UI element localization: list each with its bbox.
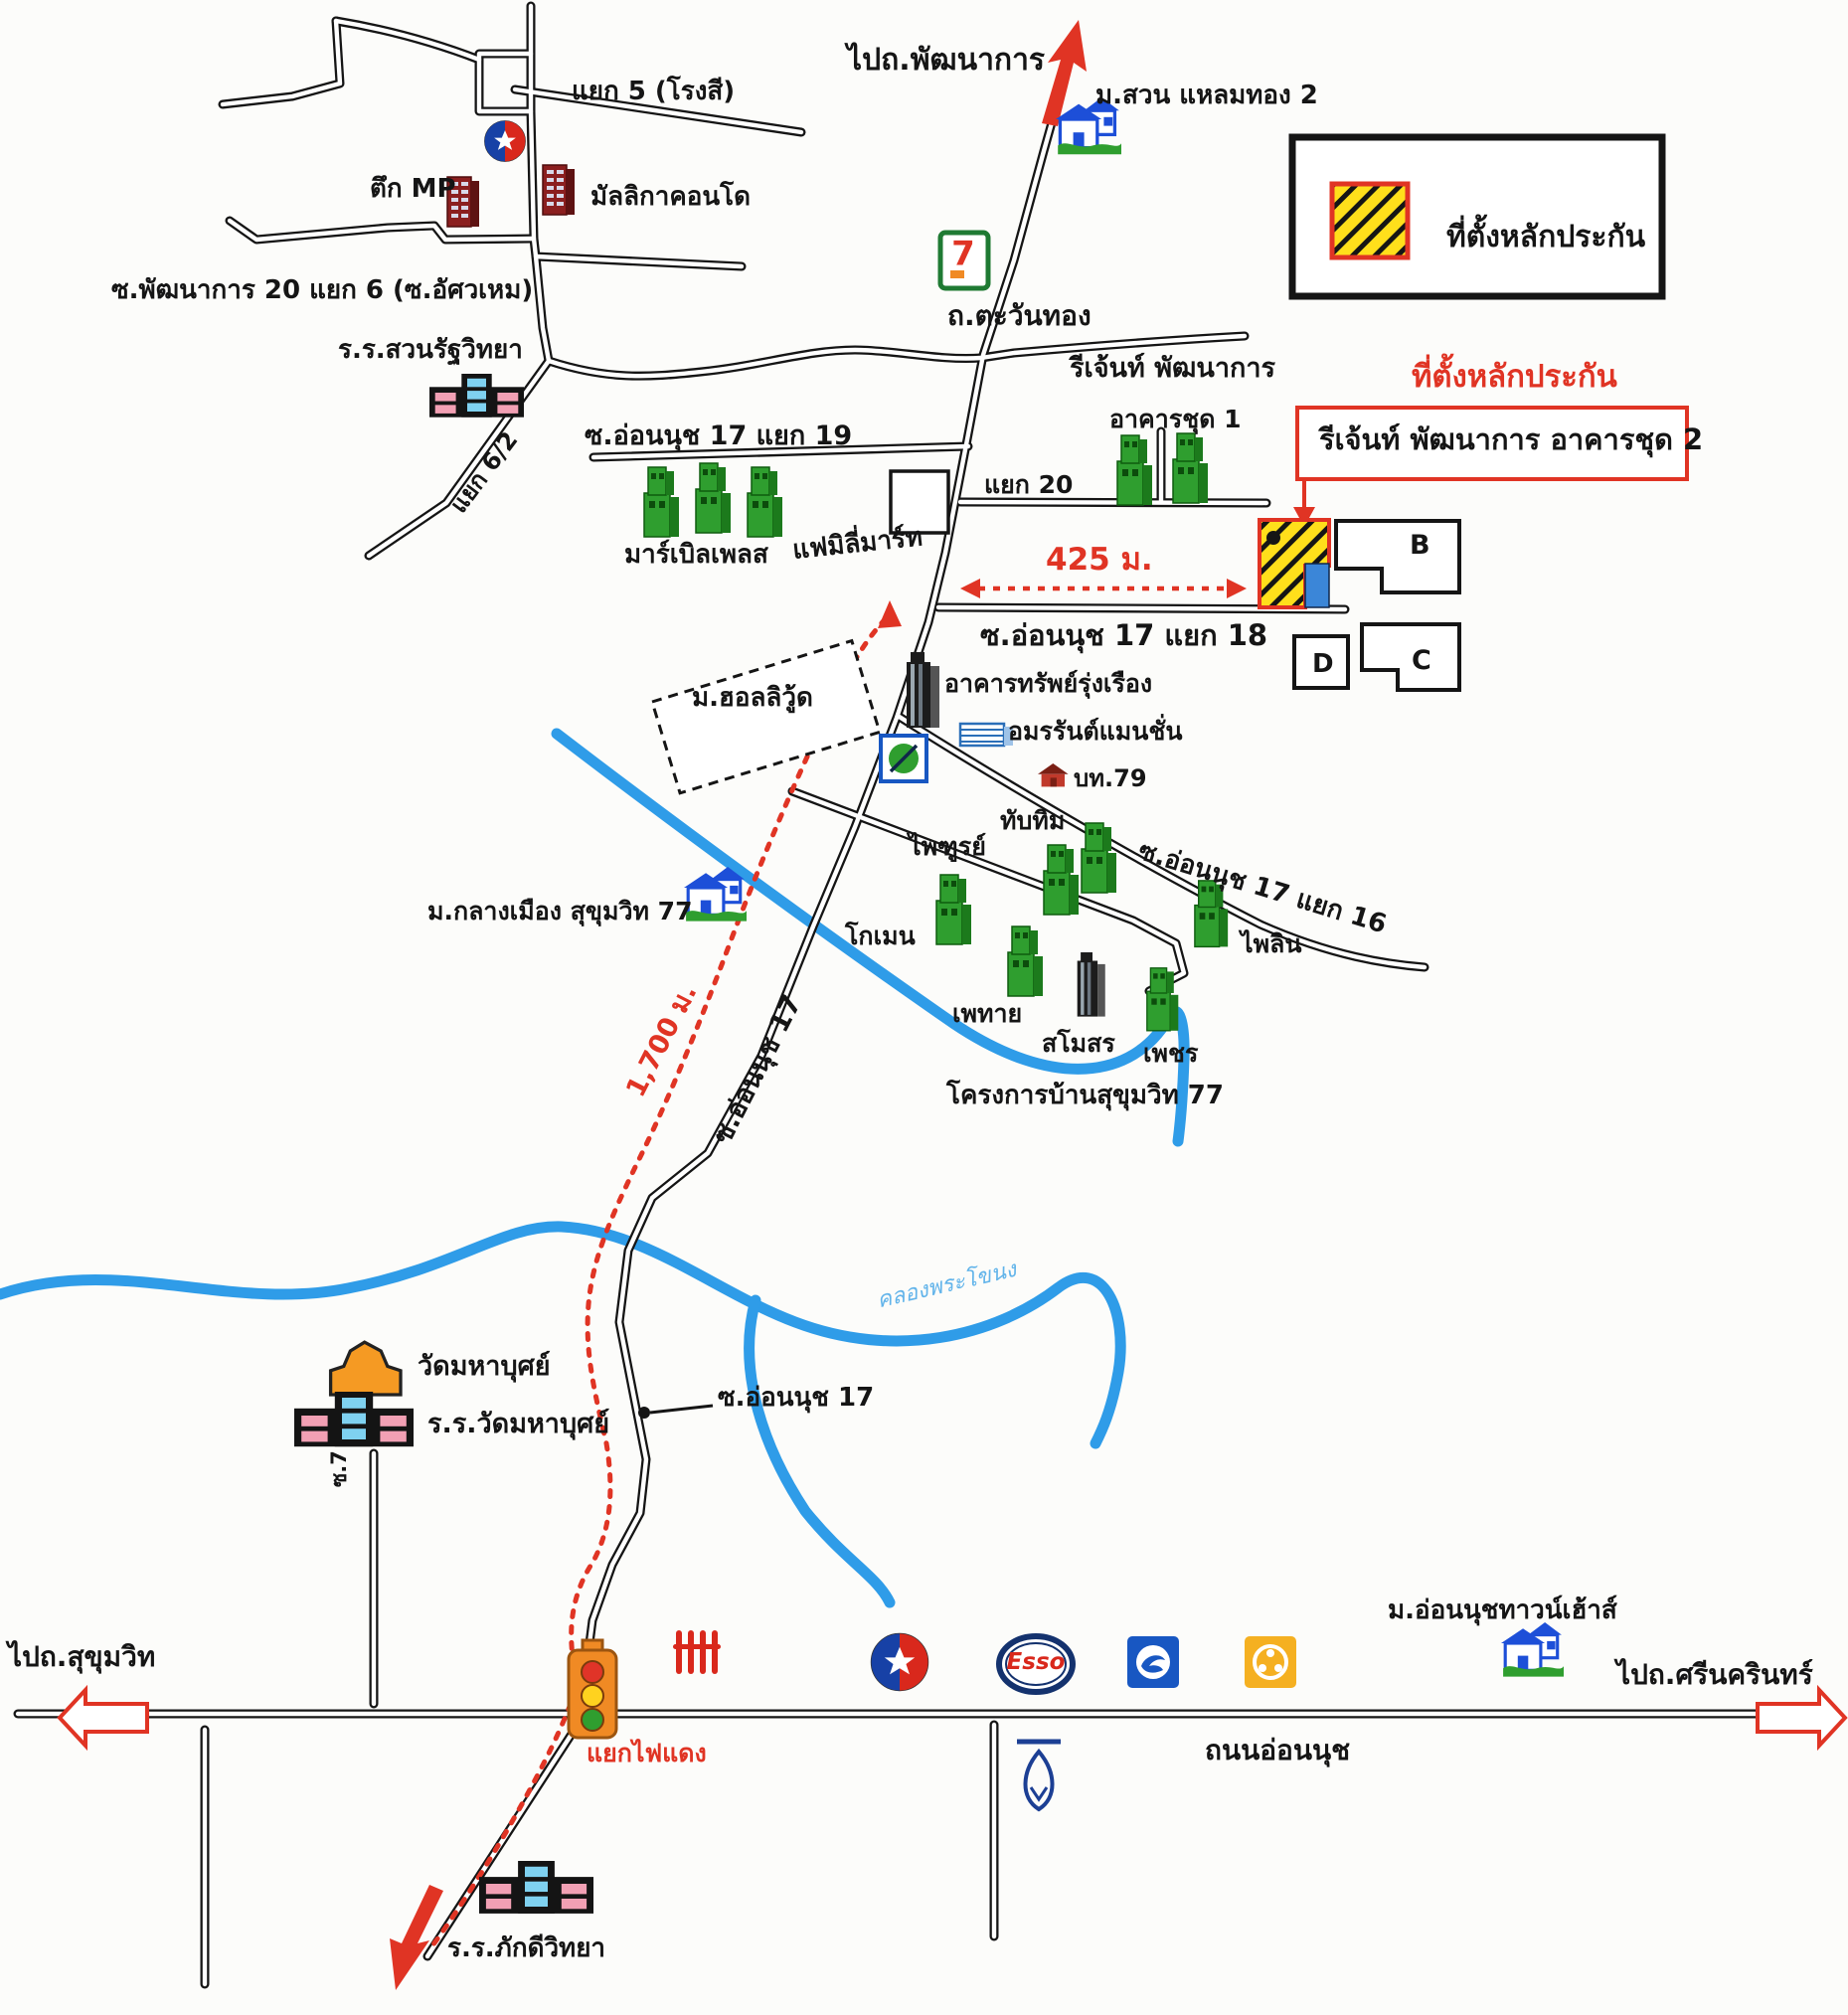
label-phaithun: ไพฑูรย์ [909, 833, 986, 861]
rivers [0, 734, 1184, 1602]
label-to-srinakarin: ไปถ.ศรีนครินทร์ [1616, 1660, 1813, 1691]
label-wat-mahabut: วัดมหาบุศย์ [418, 1352, 551, 1382]
label-regent-chut2: รีเจ้นท์ พัฒนาการ อาคารชุด 2 [1319, 424, 1703, 456]
railway-crossing-icon [673, 1630, 721, 1674]
label-yaek19: ซ.อ่อนนุช 17 แยก 19 [585, 421, 852, 451]
label-phakdi-school: ร.ร.ภักดีวิทยา [447, 1934, 605, 1963]
label-tawanthong: ถ.ตะวันทอง [947, 301, 1092, 332]
arrow-to-sukhumvit [60, 1690, 147, 1746]
label-baan77: โครงการบ้านสุขุมวิท 77 [946, 1082, 1224, 1110]
label-to-phatthanakan: ไปถ.พัฒนาการ [847, 44, 1045, 77]
label-regent: รีเจ้นท์ พัฒนาการ [1070, 354, 1275, 384]
label-phailin: ไพลิน [1241, 930, 1301, 958]
label-laemthong: ม.สวน แหลมทอง 2 [1095, 82, 1318, 110]
bangkok-bank-icon [1017, 1742, 1061, 1809]
label-amonrat: อมรรันต์แมนชั่น [1008, 718, 1182, 746]
label-sap-rungrueang: อาคารทรัพย์รุ่งเรือง [944, 670, 1152, 698]
legend-label: ที่ตั้งหลักประกัน [1446, 221, 1645, 253]
building-C [1362, 624, 1459, 690]
label-chut1: อาคารชุด 1 [1109, 406, 1242, 433]
pointer-line [650, 1406, 713, 1413]
office-tower-sap-icon [907, 652, 939, 728]
label-marble-place: มาร์เบิลเพลส [624, 541, 768, 570]
label-samoson: สโมสร [1042, 1030, 1115, 1058]
pointer-dot [638, 1407, 650, 1419]
label-to-sukhumvit: ไปถ.สุขุมวิท [8, 1642, 155, 1673]
label-yaek20: แยก 20 [984, 471, 1073, 499]
map-canvas: แยก 5 (โรงสี) ตึก MP มัลลิกาคอนโด ซ.พัฒน… [0, 0, 1848, 2015]
label-building-d: D [1312, 650, 1334, 679]
label-thapthim: ทับทิม [1000, 807, 1065, 835]
caltex-icon-south [872, 1634, 928, 1691]
green-tower-marble-1 [644, 467, 679, 537]
mansion-amonrat-icon [960, 724, 1013, 746]
green-tower-phet [1147, 968, 1179, 1031]
road-cluster-loop-inner [792, 791, 1184, 991]
label-yaek5: แยก 5 (โรงสี) [572, 78, 735, 106]
road-nw-loop [479, 54, 531, 111]
legend-box [1292, 137, 1662, 296]
collateral-dot [1266, 531, 1280, 545]
school-watmahabut-icon [294, 1392, 414, 1446]
road-yaek20-inner [960, 502, 1266, 503]
label-mallika: มัลลิกาคอนโด [590, 183, 751, 212]
label-hollywood: ม.ฮอลลิวู้ด [692, 684, 813, 713]
green-tower-thapthim-1 [1044, 845, 1079, 915]
green-tower-marble-3 [748, 467, 782, 537]
hollywood-block [652, 641, 880, 793]
label-komen: โกเมน [845, 923, 916, 950]
green-tower-phethai [1008, 926, 1043, 996]
label-wat-mahabut-school: ร.ร.วัดมหาบุศย์ [427, 1410, 609, 1439]
label-425m: 425 ม. [1046, 543, 1153, 577]
green-tower-chut1-2 [1173, 433, 1208, 503]
caltex-icon [485, 121, 526, 162]
condo-mallika-icon [543, 165, 575, 215]
house-klangmueang-icon [684, 867, 747, 922]
road-nw-2 [223, 21, 340, 104]
label-yaek18: ซ.อ่อนนุช 17 แยก 18 [980, 620, 1267, 652]
label-onnut17-pointer: ซ.อ่อนนุช 17 [718, 1384, 874, 1413]
label-suanrat-school: ร.ร.สวนรัฐวิทยา [338, 336, 523, 365]
label-townhouse: ม.อ่อนนุชทาวน์เฮ้าส์ [1388, 1596, 1617, 1625]
label-soi7: ซ.7 [328, 1450, 351, 1487]
distance-425-arrow-left [960, 579, 980, 598]
label-phet: เพชร [1143, 1040, 1198, 1068]
small-house-bt79-icon [1038, 763, 1069, 786]
arrow-to-srinakarin [1758, 1690, 1845, 1746]
label-phethai: เพทาย [952, 1000, 1022, 1028]
label-building-c: C [1412, 646, 1431, 676]
office-tower-samoson-icon [1078, 952, 1105, 1017]
label-tuek-mp: ตึก MP [370, 175, 456, 204]
traffic-light-icon [569, 1640, 616, 1738]
label-building-b: B [1410, 531, 1430, 561]
school-suanrat-icon [429, 374, 524, 418]
school-phakdi-icon [479, 1861, 593, 1914]
label-onnut-road: ถนนอ่อนนุช [1205, 1736, 1350, 1766]
house-townhouse-icon [1501, 1622, 1564, 1677]
esso-logo-text: Esso [1007, 1650, 1066, 1675]
green-circle-logo-icon [881, 736, 926, 781]
label-bt79: บท.79 [1074, 765, 1147, 791]
green-tower-marble-2 [696, 463, 731, 533]
seven-eleven-digit: 7 [951, 236, 975, 272]
label-collateral-red: ที่ตั้งหลักประกัน [1412, 360, 1617, 394]
building-B [1336, 521, 1459, 592]
krungsri-bank-icon [1245, 1636, 1296, 1688]
green-tower-thapthim-2 [1082, 823, 1116, 893]
ktb-bank-icon [1127, 1636, 1179, 1688]
label-phatthanakan20: ซ.พัฒนาการ 20 แยก 6 (ซ.อัศวเหม) [111, 276, 533, 305]
temple-icon [331, 1342, 401, 1395]
route-arrowhead-north [878, 600, 902, 628]
river-branch [750, 1300, 890, 1602]
label-red-light-junction: แยกไฟแดง [587, 1740, 707, 1767]
legend-hatched-swatch [1332, 184, 1408, 257]
distance-425-arrow-right [1227, 579, 1247, 598]
road-cluster-loop [792, 791, 1184, 991]
collateral-annex [1305, 564, 1329, 607]
green-tower-phaithun [936, 875, 971, 944]
label-klangmueang: ม.กลางเมือง สุขุมวิท 77 [427, 898, 692, 925]
road-nw-loop-inner [479, 54, 531, 111]
green-tower-chut1-1 [1117, 435, 1152, 505]
